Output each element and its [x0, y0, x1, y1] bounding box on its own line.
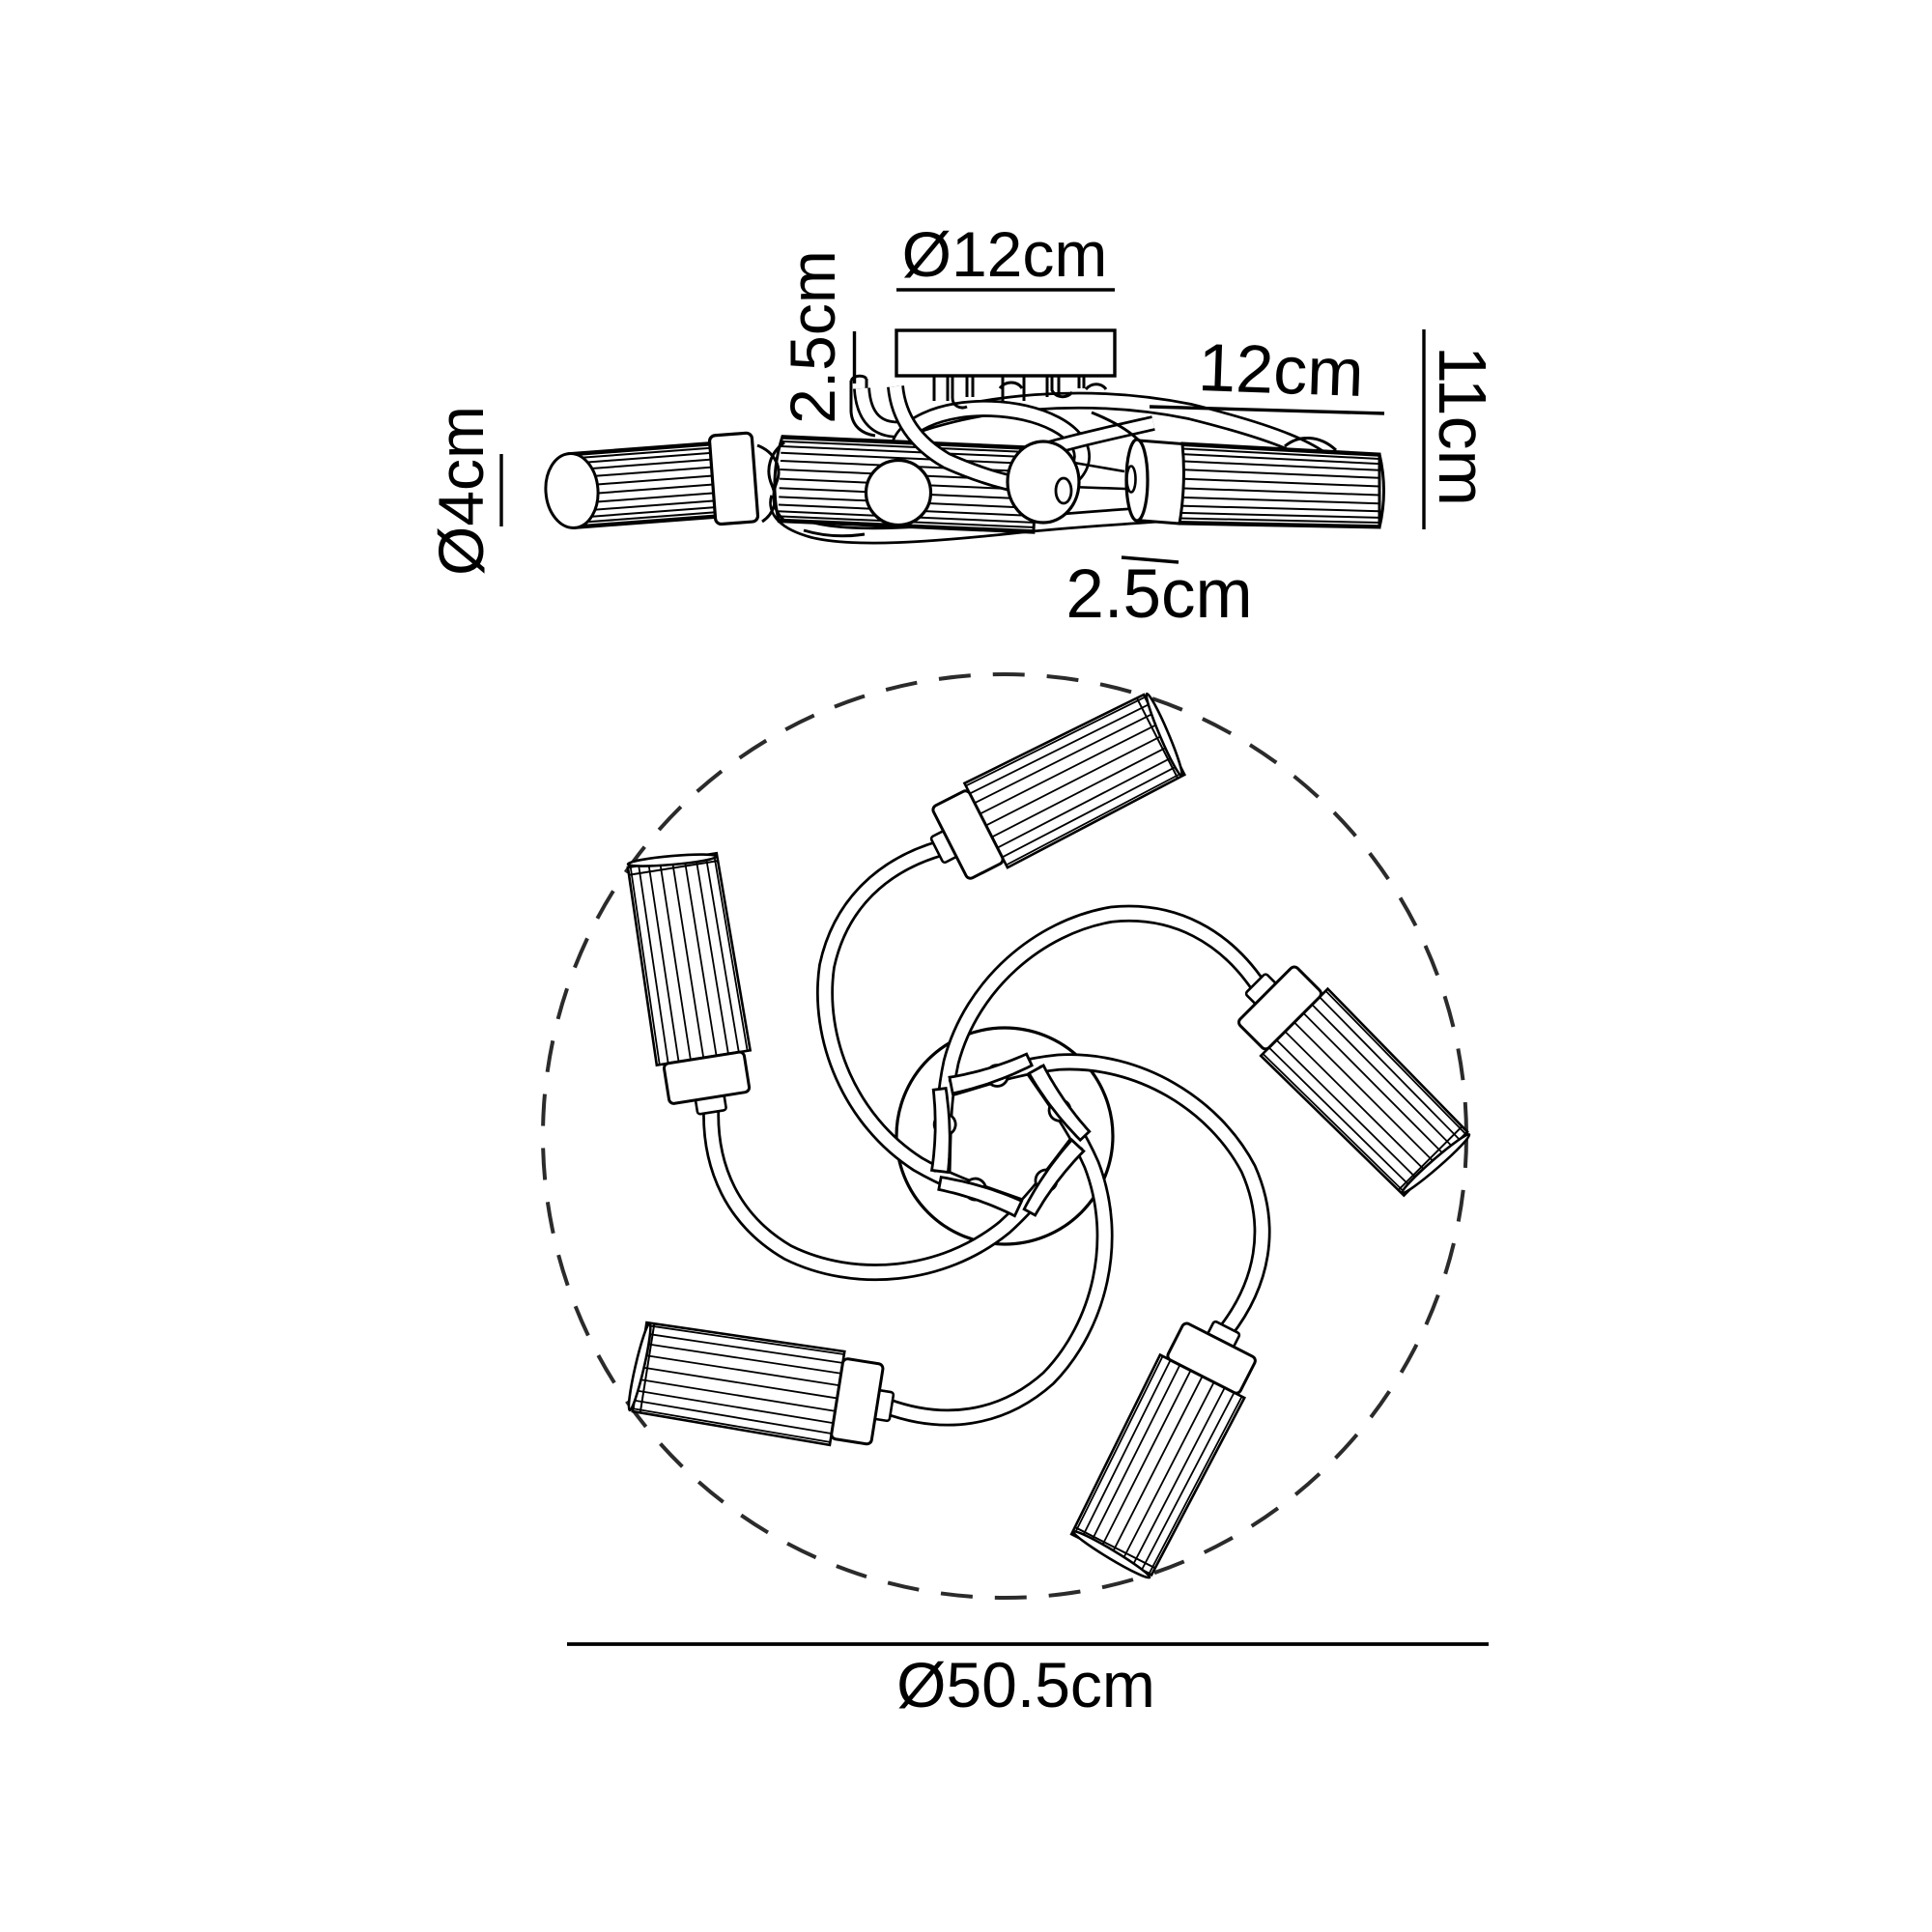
svg-text:2.5cm: 2.5cm	[1065, 556, 1252, 633]
svg-text:Ø4cm: Ø4cm	[425, 406, 497, 576]
svg-text:11cm: 11cm	[1425, 346, 1500, 506]
svg-text:12cm: 12cm	[1197, 329, 1365, 411]
svg-text:Ø50.5cm: Ø50.5cm	[896, 1649, 1155, 1720]
svg-text:2.5cm: 2.5cm	[777, 250, 848, 424]
svg-text:Ø12cm: Ø12cm	[902, 218, 1108, 290]
